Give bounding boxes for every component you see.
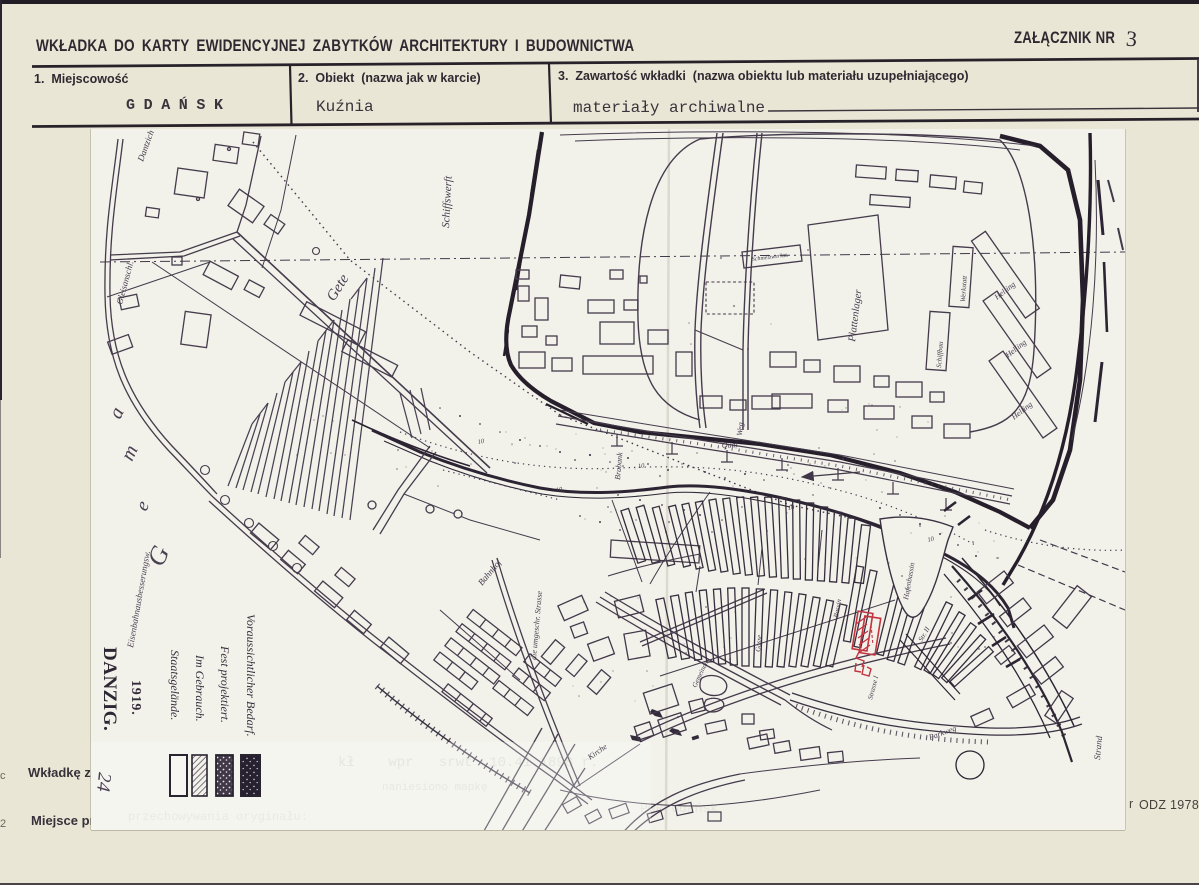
svg-text:Im Gebrauch.: Im Gebrauch. — [193, 654, 207, 722]
svg-text:PGR Gdańsk: PGR Gdańsk — [640, 801, 718, 816]
svg-text:Voraussichtlicher Bedarf.: Voraussichtlicher Bedarf. — [244, 614, 258, 737]
svg-text:DANZIG.: DANZIG. — [99, 647, 120, 731]
svg-text:przechowywania oryginału:: przechowywania oryginału: — [128, 810, 308, 824]
svg-text:Weg: Weg — [735, 422, 745, 436]
svg-text:Quai: Quai — [722, 440, 739, 450]
svg-text:Fest projektiert.: Fest projektiert. — [218, 645, 232, 723]
svg-text:Gasse: Gasse — [754, 634, 763, 652]
svg-text:Staatsgelände.: Staatsgelände. — [168, 650, 182, 720]
svg-text:naniesiono mapkę: naniesiono mapkę — [382, 782, 488, 794]
svg-text:1919.: 1919. — [128, 680, 143, 716]
svg-text:24: 24 — [92, 771, 115, 793]
svg-text:kł wpr srwt 10.41.1898 r: kł wpr srwt 10.41.1898 r. — [338, 755, 598, 771]
svg-text:Strand: Strand — [1092, 735, 1104, 760]
